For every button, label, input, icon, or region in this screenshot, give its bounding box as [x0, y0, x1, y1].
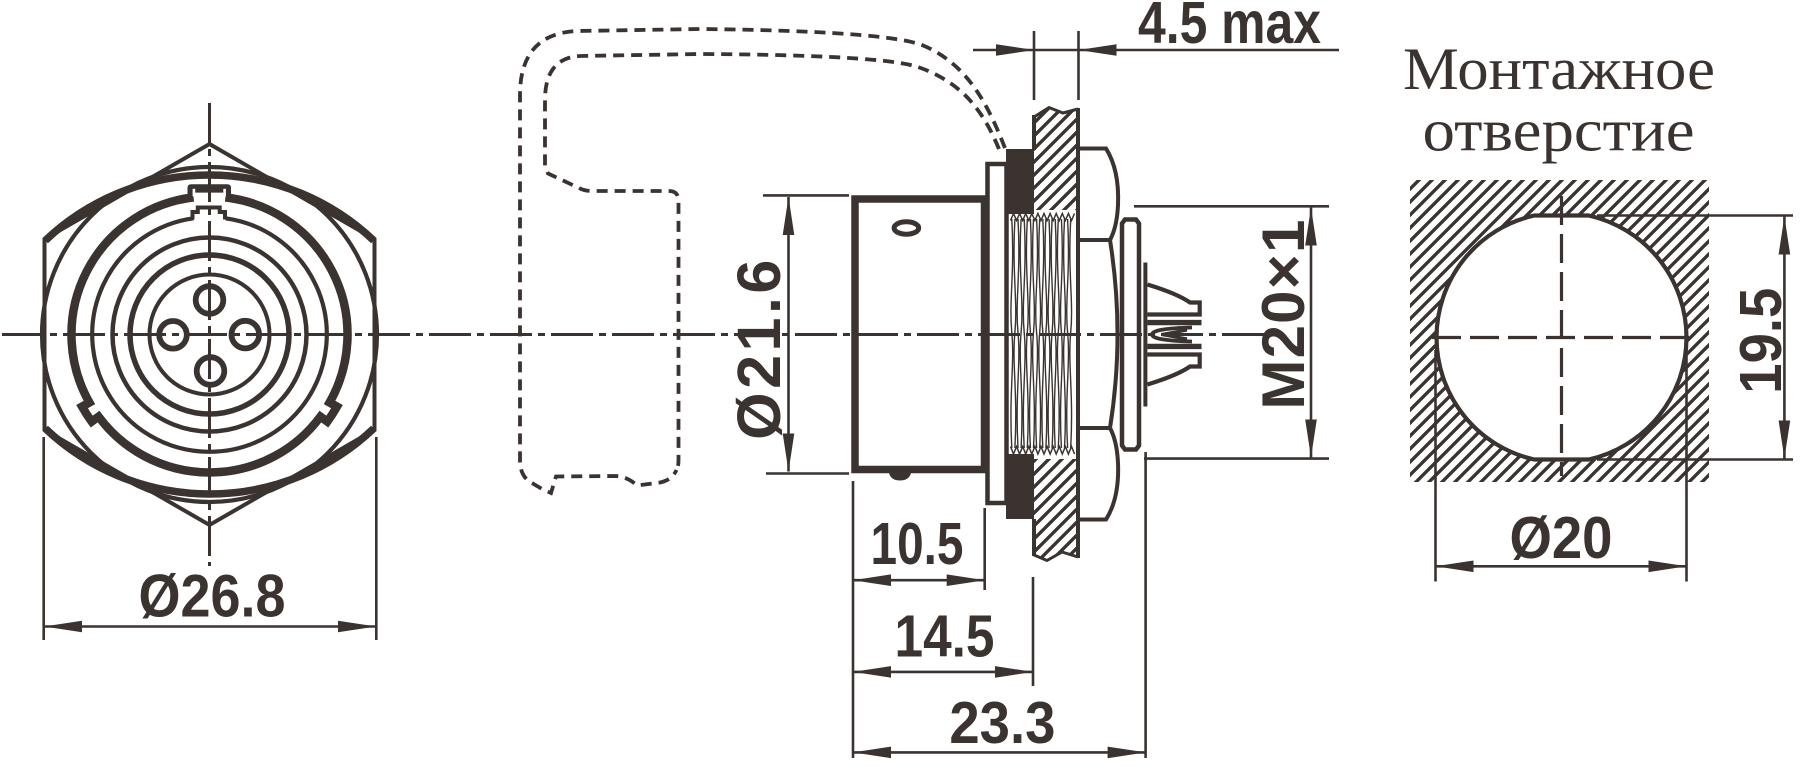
svg-text:Монтажное: Монтажное	[1403, 36, 1715, 102]
svg-text:M20×1: M20×1	[1250, 218, 1317, 409]
svg-text:10.5: 10.5	[871, 511, 964, 577]
svg-text:14.5: 14.5	[895, 604, 995, 670]
svg-text:отверстие: отверстие	[1423, 98, 1695, 164]
svg-text:Ø20: Ø20	[1510, 505, 1613, 571]
svg-text:4.5 max: 4.5 max	[1138, 0, 1321, 56]
svg-text:Ø21.6: Ø21.6	[725, 256, 793, 440]
svg-text:Ø26.8: Ø26.8	[139, 563, 286, 630]
svg-text:23.3: 23.3	[949, 690, 1055, 756]
svg-text:19.5: 19.5	[1728, 288, 1794, 394]
